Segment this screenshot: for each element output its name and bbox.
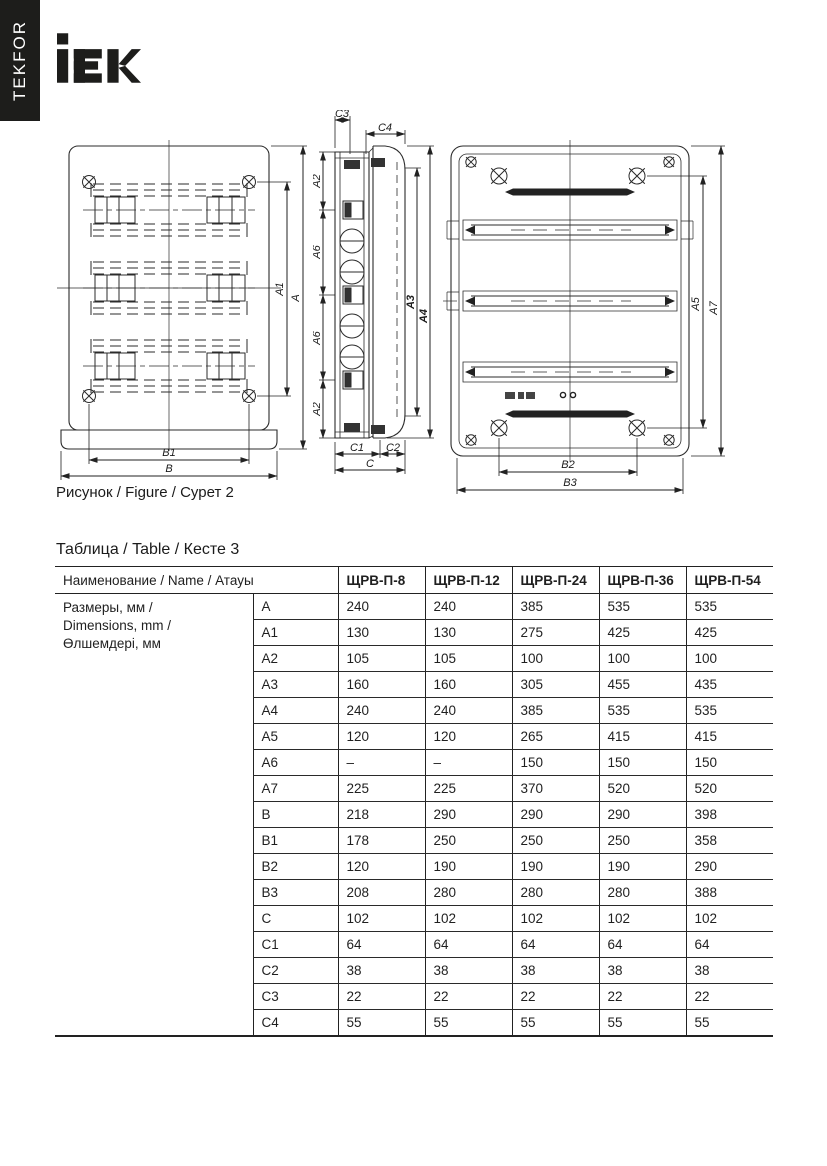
dim-value-cell: 55 [686, 1010, 773, 1037]
dim-label-a: A [290, 294, 302, 302]
dim-label-cell: A4 [253, 698, 338, 724]
dim-value-cell: 208 [338, 880, 425, 906]
dim-value-cell: 250 [599, 828, 686, 854]
name-header-cell: Наименование / Name / Атауы [55, 567, 338, 594]
dim-label-a5: A5 [690, 296, 702, 311]
catalog-page: TEKFOR [0, 0, 827, 1166]
dim-value-cell: 102 [599, 906, 686, 932]
dim-value-cell: 385 [512, 698, 599, 724]
back-view-drawing: A5 A7 B2 B3 [441, 138, 741, 498]
dim-value-cell: 38 [425, 958, 512, 984]
dim-label-c2: C2 [386, 442, 400, 454]
table-header-row: Наименование / Name / Атауы ЩРВ-П-8 ЩРВ-… [55, 567, 773, 594]
dim-value-cell: 535 [599, 698, 686, 724]
dim-value-cell: 120 [338, 854, 425, 880]
model-header: ЩРВ-П-36 [599, 567, 686, 594]
dim-value-cell: 22 [425, 984, 512, 1010]
dim-value-cell: 130 [425, 620, 512, 646]
dim-value-cell: 240 [338, 698, 425, 724]
dim-label-a2-top: A2 [313, 174, 323, 188]
dim-label-cell: A3 [253, 672, 338, 698]
dim-value-cell: 120 [425, 724, 512, 750]
dim-value-cell: 100 [512, 646, 599, 672]
dim-value-cell: – [338, 750, 425, 776]
dim-value-cell: 38 [686, 958, 773, 984]
brand-sidebar: TEKFOR [0, 0, 40, 121]
table-title: Таблица / Table / Кесте 3 [56, 541, 239, 559]
dim-label-c3: C3 [335, 110, 350, 120]
dim-value-cell: 240 [425, 594, 512, 620]
dim-value-cell: 64 [599, 932, 686, 958]
brand-vertical-text: TEKFOR [10, 20, 30, 101]
dim-value-cell: 385 [512, 594, 599, 620]
dim-label-b: B [165, 463, 172, 475]
dim-label-b3: B3 [563, 477, 577, 489]
dim-value-cell: 425 [599, 620, 686, 646]
table-row: Размеры, мм /Dimensions, mm /Өлшемдері, … [55, 594, 773, 620]
dim-value-cell: 160 [425, 672, 512, 698]
dim-label-a3: A3 [405, 295, 417, 310]
dim-label-cell: C2 [253, 958, 338, 984]
dim-value-cell: 435 [686, 672, 773, 698]
figure-drawings: A1 A B1 B [55, 110, 755, 482]
dim-label-cell: C [253, 906, 338, 932]
dim-label-cell: A5 [253, 724, 338, 750]
dim-value-cell: 120 [338, 724, 425, 750]
dim-value-cell: 64 [686, 932, 773, 958]
dim-value-cell: 535 [686, 594, 773, 620]
dim-value-cell: 415 [686, 724, 773, 750]
dim-value-cell: 520 [599, 776, 686, 802]
dim-label-cell: B [253, 802, 338, 828]
dim-label-a6-upper: A6 [313, 244, 323, 259]
iek-logo-icon [57, 33, 141, 83]
dim-label-a6-lower: A6 [313, 330, 323, 345]
model-header: ЩРВ-П-24 [512, 567, 599, 594]
dim-value-cell: 150 [686, 750, 773, 776]
dim-value-cell: 398 [686, 802, 773, 828]
dim-value-cell: 280 [599, 880, 686, 906]
dim-label-cell: A [253, 594, 338, 620]
dim-value-cell: 102 [686, 906, 773, 932]
dim-value-cell: 38 [512, 958, 599, 984]
dim-value-cell: 64 [512, 932, 599, 958]
dim-value-cell: 22 [338, 984, 425, 1010]
dim-value-cell: 178 [338, 828, 425, 854]
dim-value-cell: 55 [599, 1010, 686, 1037]
dim-value-cell: 38 [338, 958, 425, 984]
dimensions-table: Наименование / Name / Атауы ЩРВ-П-8 ЩРВ-… [55, 566, 773, 1037]
dim-value-cell: 275 [512, 620, 599, 646]
dim-value-cell: 305 [512, 672, 599, 698]
dim-label-c: C [366, 458, 374, 470]
dim-value-cell: – [425, 750, 512, 776]
dim-value-cell: 100 [599, 646, 686, 672]
front-view-drawing: A1 A B1 B [55, 138, 317, 484]
dim-value-cell: 240 [338, 594, 425, 620]
side-view-drawing: C3 C4 A2 A6 A6 A2 A3 A4 C1 C2 C [313, 110, 439, 478]
dim-label-cell: A1 [253, 620, 338, 646]
dim-value-cell: 290 [686, 854, 773, 880]
dim-value-cell: 290 [425, 802, 512, 828]
model-header: ЩРВ-П-8 [338, 567, 425, 594]
dim-value-cell: 358 [686, 828, 773, 854]
dim-label-b2: B2 [561, 459, 574, 471]
dim-value-cell: 102 [425, 906, 512, 932]
dim-value-cell: 250 [425, 828, 512, 854]
model-header: ЩРВ-П-12 [425, 567, 512, 594]
dim-value-cell: 105 [338, 646, 425, 672]
stamp-marks [505, 392, 576, 399]
dim-label-a7: A7 [708, 300, 720, 315]
dim-value-cell: 370 [512, 776, 599, 802]
dim-value-cell: 240 [425, 698, 512, 724]
dim-value-cell: 55 [338, 1010, 425, 1037]
dim-value-cell: 190 [512, 854, 599, 880]
dim-label-cell: B2 [253, 854, 338, 880]
dim-label-cell: B1 [253, 828, 338, 854]
dim-value-cell: 150 [512, 750, 599, 776]
dim-value-cell: 250 [512, 828, 599, 854]
dim-value-cell: 535 [686, 698, 773, 724]
dim-value-cell: 218 [338, 802, 425, 828]
dim-value-cell: 22 [512, 984, 599, 1010]
dim-label-cell: A6 [253, 750, 338, 776]
dim-label-cell: A2 [253, 646, 338, 672]
back-dimension-lines [457, 146, 725, 494]
dim-label-cell: A7 [253, 776, 338, 802]
dim-value-cell: 64 [425, 932, 512, 958]
dim-value-cell: 425 [686, 620, 773, 646]
dim-label-a2-bottom: A2 [313, 402, 323, 416]
dim-value-cell: 455 [599, 672, 686, 698]
dim-value-cell: 280 [512, 880, 599, 906]
dim-label-c1: C1 [350, 442, 364, 454]
dim-value-cell: 415 [599, 724, 686, 750]
dim-label-a1: A1 [274, 282, 286, 296]
dim-value-cell: 102 [338, 906, 425, 932]
dim-label-b1: B1 [162, 447, 175, 459]
iek-logo [57, 33, 141, 88]
dim-value-cell: 22 [686, 984, 773, 1010]
dim-value-cell: 130 [338, 620, 425, 646]
dim-value-cell: 190 [599, 854, 686, 880]
dim-value-cell: 225 [425, 776, 512, 802]
row-group-label: Размеры, мм /Dimensions, mm /Өлшемдері, … [55, 594, 253, 1037]
dimensions-table-body: Размеры, мм /Dimensions, mm /Өлшемдері, … [55, 594, 773, 1037]
dim-value-cell: 102 [512, 906, 599, 932]
dim-value-cell: 22 [599, 984, 686, 1010]
dim-value-cell: 225 [338, 776, 425, 802]
dim-value-cell: 160 [338, 672, 425, 698]
dim-value-cell: 280 [425, 880, 512, 906]
dim-value-cell: 150 [599, 750, 686, 776]
dim-value-cell: 388 [686, 880, 773, 906]
model-header: ЩРВ-П-54 [686, 567, 773, 594]
dim-value-cell: 290 [599, 802, 686, 828]
dim-label-c4: C4 [378, 122, 392, 134]
dim-value-cell: 55 [512, 1010, 599, 1037]
dim-value-cell: 265 [512, 724, 599, 750]
dim-label-cell: C4 [253, 1010, 338, 1037]
dim-value-cell: 105 [425, 646, 512, 672]
dim-value-cell: 55 [425, 1010, 512, 1037]
dim-label-cell: C3 [253, 984, 338, 1010]
side-rail-mounts [340, 201, 364, 389]
dim-value-cell: 100 [686, 646, 773, 672]
dim-value-cell: 38 [599, 958, 686, 984]
dim-value-cell: 520 [686, 776, 773, 802]
dim-value-cell: 64 [338, 932, 425, 958]
dim-label-cell: B3 [253, 880, 338, 906]
dim-value-cell: 535 [599, 594, 686, 620]
dim-value-cell: 290 [512, 802, 599, 828]
dim-label-cell: C1 [253, 932, 338, 958]
figure-caption: Рисунок / Figure / Сурет 2 [56, 484, 234, 501]
dim-label-a4: A4 [418, 309, 430, 324]
dim-value-cell: 190 [425, 854, 512, 880]
